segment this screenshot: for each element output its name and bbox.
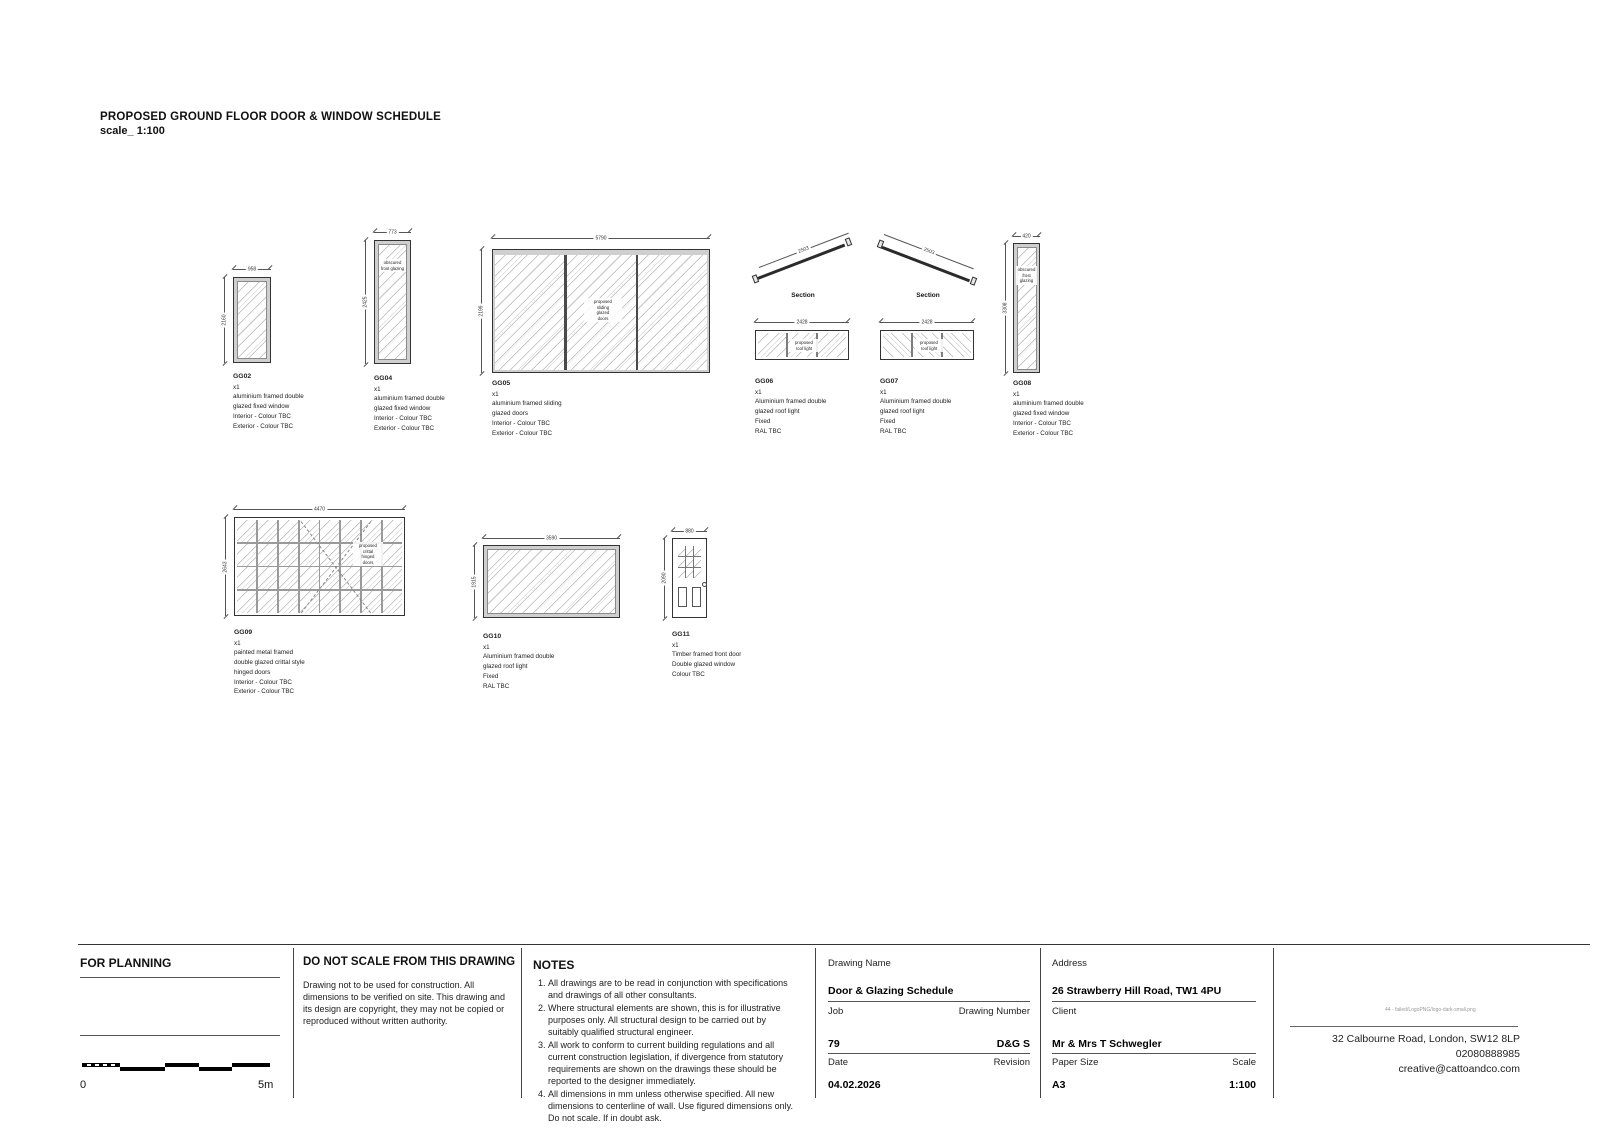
client-value: Mr & Mrs T Schwegler <box>1052 1038 1162 1050</box>
gg05-dim-width: 5790 <box>492 238 710 239</box>
drawing-number-value: D&G S <box>880 1038 1030 1050</box>
gg05-spec: aluminium framed slidingglazed doorsInte… <box>492 399 582 438</box>
gg09-cell <box>237 591 256 613</box>
gg11-dim-width: 880 <box>672 531 707 532</box>
text-line: Aluminium framed double <box>483 652 573 662</box>
gg06-id: GG06 <box>755 377 839 388</box>
gg06-label: GG06 x1 Aluminium framed doubleglazed ro… <box>755 377 839 436</box>
gg11-panel-left <box>678 587 687 607</box>
gg02-dim-width-label: 958 <box>246 266 258 272</box>
gg09-cell <box>362 591 381 613</box>
gg02-id: GG02 <box>233 372 311 383</box>
gg07-section-dim-label: 2503 <box>921 246 937 257</box>
gg05-dim-width-label: 5790 <box>593 235 608 241</box>
scale-value: 1:100 <box>1106 1079 1256 1091</box>
text-line: aluminium framed double <box>374 394 452 404</box>
gg11-panel-right <box>692 587 701 607</box>
text-line: doors <box>354 560 382 566</box>
gg10-glass-pane <box>487 549 616 614</box>
text-line: Exterior - Colour TBC <box>234 687 326 697</box>
text-line: glazed roof light <box>755 407 839 417</box>
do-not-scale-body: Drawing not to be used for construction.… <box>303 980 505 1028</box>
gg05-label: GG05 x1 aluminium framed slidingglazed d… <box>492 379 582 438</box>
gg05-note: proposedslidingglazeddoors <box>584 298 622 322</box>
gg11-dim-height: 2090 <box>664 538 665 618</box>
gg08-dim-height-label: 3308 <box>1002 300 1008 315</box>
gg11-id: GG11 <box>672 630 762 641</box>
text-line: Colour TBC <box>672 670 762 680</box>
drawing-name-rule <box>828 1001 1030 1002</box>
gg09-id: GG09 <box>234 628 326 639</box>
gg09-cell <box>237 544 256 566</box>
gg11-label: GG11 x1 Timber framed front doorDouble g… <box>672 630 762 680</box>
text-line: Interior - Colour TBC <box>233 412 311 422</box>
job-value: 79 <box>828 1038 840 1050</box>
gg11-door-knob <box>702 582 707 587</box>
text-line: Aluminium framed double <box>880 397 964 407</box>
text-line: All work to conform to current building … <box>548 1040 795 1087</box>
gg06-qty: x1 <box>755 388 839 398</box>
studio-email: creative@cattoandco.com <box>1200 1062 1520 1077</box>
notes-list: All drawings are to be read in conjuncti… <box>533 978 795 1124</box>
gg07-dim-width: 2428 <box>880 322 974 323</box>
studio-rule <box>1290 1026 1518 1027</box>
gg05-pane-3 <box>638 255 707 370</box>
scale-bar-segment <box>232 1063 270 1067</box>
gg11-dim-height-label: 2090 <box>661 570 667 585</box>
gg02-dim-height: 2160 <box>224 277 225 363</box>
gg02-glass-pane <box>237 281 267 359</box>
scale-bar-segment <box>120 1067 165 1071</box>
scale-bar-checker <box>82 1063 120 1067</box>
gg06-section-word: Section <box>753 292 853 299</box>
gg07-qty: x1 <box>880 388 964 398</box>
text-line: obscured <box>380 260 405 266</box>
gg09-cell <box>279 567 298 589</box>
drawing-name-value: Door & Glazing Schedule <box>828 985 953 997</box>
gg06-section-dim: 2503 <box>759 233 849 268</box>
text-line: glazed doors <box>492 409 582 419</box>
gg07-spec: Aluminium framed doubleglazed roof light… <box>880 397 964 436</box>
gg09-label: GG09 x1 painted metal frameddouble glaze… <box>234 628 326 697</box>
do-not-scale-heading: DO NOT SCALE FROM THIS DRAWING <box>303 956 515 968</box>
gg04-dim-width-label: 773 <box>386 229 398 235</box>
gg11-glass-cell <box>694 568 701 578</box>
gg11-glass-cell <box>686 546 693 556</box>
client-label: Client <box>1052 1006 1076 1017</box>
gg02-qty: x1 <box>233 383 311 393</box>
gg07-section-word: Section <box>878 292 978 299</box>
gg08-dim-height: 3308 <box>1005 243 1006 373</box>
text-line: RAL TBC <box>880 427 964 437</box>
text-line: Exterior - Colour TBC <box>374 424 452 434</box>
gg09-cell <box>300 544 319 566</box>
for-planning-rule-2 <box>80 1035 280 1036</box>
gg09-dim-width: 4470 <box>234 509 405 510</box>
gg09-cell <box>320 520 339 542</box>
gg04-qty: x1 <box>374 385 452 395</box>
gg08-dim-width-label: 420 <box>1020 233 1032 239</box>
paper-size-value: A3 <box>1052 1079 1065 1091</box>
page-title-block: PROPOSED GROUND FLOOR DOOR & WINDOW SCHE… <box>100 111 441 137</box>
drawing-sheet: PROPOSED GROUND FLOOR DOOR & WINDOW SCHE… <box>0 0 1600 1131</box>
gg11-spec: Timber framed front doorDouble glazed wi… <box>672 650 762 679</box>
text-line: Interior - Colour TBC <box>492 419 582 429</box>
gg06-section-cap-right <box>845 237 852 246</box>
gg04-note: obscuredfrost glazing <box>379 259 406 272</box>
gg04-id: GG04 <box>374 374 452 385</box>
text-line: All drawings are to be read in conjuncti… <box>548 978 795 1001</box>
gg09-cell <box>320 567 339 589</box>
text-line: obscured <box>1017 267 1036 273</box>
gg11-glass-cell <box>678 546 685 556</box>
text-line: glazing <box>1017 278 1036 284</box>
text-line: glazed fixed window <box>233 402 311 412</box>
text-line: roof light <box>916 346 942 352</box>
gg05-dim-height-label: 2199 <box>478 303 484 318</box>
gg10-spec: Aluminium framed doubleglazed roof light… <box>483 652 573 691</box>
studio-phone: 02080888985 <box>1200 1047 1520 1062</box>
gg09-cell <box>383 567 402 589</box>
text-line: aluminium framed double <box>233 392 311 402</box>
text-line: frost glazing <box>380 266 405 272</box>
gg02-dim-width: 958 <box>233 269 271 270</box>
revision-label: Revision <box>880 1057 1030 1068</box>
titleblock-divider-3 <box>815 948 816 1098</box>
text-line: Exterior - Colour TBC <box>1013 429 1091 439</box>
gg09-cell <box>320 544 339 566</box>
text-line: roof light <box>791 346 817 352</box>
gg10-id: GG10 <box>483 632 573 643</box>
gg04-label: GG04 x1 aluminium framed doubleglazed fi… <box>374 374 452 433</box>
gg10-dim-width-label: 3590 <box>544 535 559 541</box>
text-line: Aluminium framed double <box>755 397 839 407</box>
gg11-dim-width-label: 880 <box>683 528 695 534</box>
titleblock-divider-2 <box>521 948 522 1098</box>
gg09-cell <box>383 591 402 613</box>
scale-bar-end: 5m <box>258 1079 273 1091</box>
text-line: Interior - Colour TBC <box>234 678 326 688</box>
gg08-spec: aluminium framed doubleglazed fixed wind… <box>1013 399 1091 438</box>
text-line: RAL TBC <box>755 427 839 437</box>
drawing-name-label: Drawing Name <box>828 958 891 969</box>
text-line: Exterior - Colour TBC <box>492 429 582 439</box>
gg07-label: GG07 x1 Aluminium framed doubleglazed ro… <box>880 377 964 436</box>
text-line: Timber framed front door <box>672 650 762 660</box>
gg08-dim-width: 420 <box>1013 236 1040 237</box>
text-line: Fixed <box>880 417 964 427</box>
studio-address: 32 Calbourne Road, London, SW12 8LP <box>1200 1032 1520 1047</box>
date-label: Date <box>828 1057 848 1068</box>
gg09-cell <box>237 567 256 589</box>
gg06-section-dim-label: 2503 <box>796 245 812 256</box>
text-line: Where structural elements are shown, thi… <box>548 1003 795 1038</box>
gg04-dim-width: 773 <box>374 232 411 233</box>
gg02-window-drawing <box>233 277 271 363</box>
gg06-spec: Aluminium framed doubleglazed roof light… <box>755 397 839 436</box>
gg02-dim-height-label: 2160 <box>221 312 227 327</box>
text-line: Exterior - Colour TBC <box>233 422 311 432</box>
notes-body: All drawings are to be read in conjuncti… <box>533 978 795 1126</box>
gg09-grid <box>237 520 402 613</box>
job-label: Job <box>828 1006 843 1017</box>
gg10-dim-height: 1915 <box>474 545 475 618</box>
text-line: Double glazed window <box>672 660 762 670</box>
gg02-spec: aluminium framed doubleglazed fixed wind… <box>233 392 311 431</box>
scale-bar-zero: 0 <box>80 1079 86 1091</box>
text-line: Fixed <box>483 672 573 682</box>
gg06-plan-drawing: proposedroof light <box>755 330 849 360</box>
job-rule <box>828 1053 1030 1054</box>
text-line: glazed fixed window <box>374 404 452 414</box>
gg10-dim-height-label: 1915 <box>471 574 477 589</box>
text-line: doors <box>585 316 621 322</box>
gg05-dim-height: 2199 <box>481 249 482 373</box>
gg05-pane-1 <box>495 255 564 370</box>
page-scale: scale_ 1:100 <box>100 125 441 137</box>
titleblock-top-rule <box>78 944 1590 945</box>
text-line: Fixed <box>755 417 839 427</box>
gg09-cell <box>258 544 277 566</box>
gg07-section-drawing: 2503 <box>878 236 978 288</box>
gg09-cell <box>300 567 319 589</box>
text-line: glazed roof light <box>880 407 964 417</box>
gg09-cell <box>279 591 298 613</box>
gg09-cell <box>258 567 277 589</box>
gg09-cell <box>237 520 256 542</box>
text-line: painted metal framed <box>234 648 326 658</box>
gg05-qty: x1 <box>492 390 582 400</box>
gg09-note: proposedcrittalhingeddoors <box>353 542 383 566</box>
text-line: All dimensions in mm unless otherwise sp… <box>548 1089 795 1124</box>
gg09-doors-drawing: proposedcrittalhingeddoors <box>234 517 405 616</box>
text-line: glazed roof light <box>483 662 573 672</box>
gg09-cell <box>362 567 381 589</box>
gg07-id: GG07 <box>880 377 964 388</box>
gg09-qty: x1 <box>234 639 326 649</box>
gg02-label: GG02 x1 aluminium framed doubleglazed fi… <box>233 372 311 431</box>
gg09-cell <box>362 520 381 542</box>
gg04-window-drawing: obscuredfrost glazing <box>374 240 411 364</box>
date-value: 04.02.2026 <box>828 1079 881 1091</box>
gg07-dim-width-label: 2428 <box>919 319 934 325</box>
gg11-glazing-grid <box>678 546 701 578</box>
drawing-number-label: Drawing Number <box>880 1006 1030 1017</box>
gg06-pane-1 <box>758 333 786 357</box>
gg09-dim-height-label: 2643 <box>222 559 228 574</box>
text-line: hinged doors <box>234 668 326 678</box>
scale-bar <box>82 1063 270 1072</box>
gg04-spec: aluminium framed doubleglazed fixed wind… <box>374 394 452 433</box>
gg09-cell <box>320 591 339 613</box>
gg11-glass-cell <box>694 546 701 556</box>
gg08-note: obscuredfrostglazing <box>1016 266 1037 285</box>
gg11-glass-cell <box>686 557 693 567</box>
gg09-cell <box>279 520 298 542</box>
gg06-section-drawing: 2503 <box>753 236 853 288</box>
gg09-dim-height: 2643 <box>225 517 226 616</box>
text-line: RAL TBC <box>483 682 573 692</box>
text-line: aluminium framed double <box>1013 399 1091 409</box>
address-rule <box>1052 1001 1256 1002</box>
gg04-dim-height: 2425 <box>365 240 366 364</box>
gg11-glass-cell <box>686 568 693 578</box>
studio-contact-block: 32 Calbourne Road, London, SW12 8LP 0208… <box>1200 1032 1520 1078</box>
gg08-window-drawing: obscuredfrostglazing <box>1013 243 1040 373</box>
text-line: aluminium framed sliding <box>492 399 582 409</box>
gg11-glass-cell <box>678 557 685 567</box>
gg07-pane-3 <box>943 333 971 357</box>
scale-bar-segment <box>199 1067 233 1071</box>
gg09-spec: painted metal frameddouble glazed critta… <box>234 648 326 697</box>
address-value: 26 Strawberry Hill Road, TW1 4PU <box>1052 985 1221 997</box>
gg08-glass-pane <box>1017 247 1037 370</box>
notes-heading: NOTES <box>533 958 574 972</box>
gg09-cell <box>383 544 402 566</box>
gg09-cell <box>279 544 298 566</box>
gg10-dim-width: 3590 <box>483 538 620 539</box>
text-line: Interior - Colour TBC <box>1013 419 1091 429</box>
gg06-pane-3 <box>818 333 846 357</box>
gg07-pane-1 <box>883 333 911 357</box>
gg10-qty: x1 <box>483 643 573 653</box>
gg06-dim-width-label: 2428 <box>794 319 809 325</box>
gg05-doors-drawing: proposedslidingglazeddoors <box>492 249 710 373</box>
gg09-dim-width-label: 4470 <box>312 506 327 512</box>
gg07-plan-drawing: proposedroof light <box>880 330 974 360</box>
gg11-glass-cell <box>694 557 701 567</box>
text-line: glazed fixed window <box>1013 409 1091 419</box>
gg06-note: proposedroof light <box>790 339 818 352</box>
titleblock-divider-1 <box>293 948 294 1098</box>
gg11-glass-cell <box>678 568 685 578</box>
for-planning-rule-1 <box>80 977 280 978</box>
scale-bar-segment <box>165 1063 199 1067</box>
gg06-dim-width: 2428 <box>755 322 849 323</box>
gg09-cell <box>383 520 402 542</box>
page-title: PROPOSED GROUND FLOOR DOOR & WINDOW SCHE… <box>100 111 441 123</box>
gg08-label: GG08 x1 aluminium framed doubleglazed fi… <box>1013 379 1091 438</box>
gg11-door-drawing <box>672 538 707 618</box>
address-label: Address <box>1052 958 1087 969</box>
gg11-qty: x1 <box>672 641 762 651</box>
paper-size-label: Paper Size <box>1052 1057 1098 1068</box>
gg08-id: GG08 <box>1013 379 1091 390</box>
gg09-cell <box>258 520 277 542</box>
gg10-label: GG10 x1 Aluminium framed doubleglazed ro… <box>483 632 573 691</box>
gg07-section-cap-right <box>970 276 977 285</box>
gg07-note: proposedroof light <box>915 339 943 352</box>
gg04-dim-height-label: 2425 <box>362 294 368 309</box>
gg05-id: GG05 <box>492 379 582 390</box>
gg10-rooflight-drawing <box>483 545 620 618</box>
studio-logo-broken-image: 44 - failed/LogoPNG/logo-dark-small.png <box>1385 1007 1476 1013</box>
for-planning-heading: FOR PLANNING <box>80 956 171 970</box>
text-line: double glazed crittal style <box>234 658 326 668</box>
titleblock-divider-4 <box>1040 948 1041 1098</box>
text-line: Interior - Colour TBC <box>374 414 452 424</box>
gg09-cell <box>258 591 277 613</box>
gg08-qty: x1 <box>1013 390 1091 400</box>
